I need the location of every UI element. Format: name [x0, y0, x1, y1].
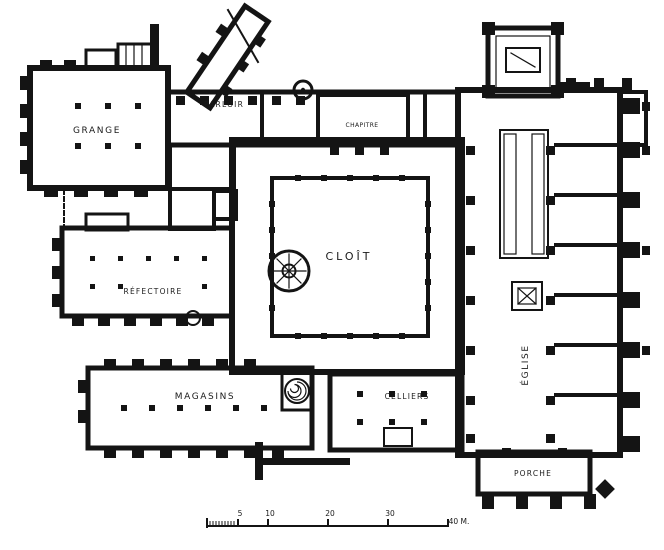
altar [512, 282, 542, 310]
wall-spur [150, 24, 159, 68]
engraving-page: GRANGE PARLOIR CHAPITRE CLOÎT RÉFECTOIRE… [0, 0, 664, 550]
gallery-side-wall [228, 10, 258, 62]
church-building [458, 78, 650, 455]
room-label-celliers: CELLIERS [385, 392, 430, 401]
grange-annex [86, 24, 159, 68]
scale-label-30: 30 [385, 509, 395, 518]
room-label-magasins: MAGASINS [175, 392, 236, 402]
cellar-entry-step [384, 428, 412, 446]
storehouse-piers [121, 405, 267, 411]
scale-label-20: 20 [325, 509, 335, 518]
room-label-refectoire: RÉFECTOIRE [124, 287, 183, 296]
grange-building [20, 24, 168, 197]
room-label-chapitre: CHAPITRE [345, 122, 378, 129]
side-chapels [556, 145, 620, 395]
room-label-cloitre: CLOÎT [325, 250, 372, 263]
room-label-porche: PORCHE [514, 469, 552, 478]
lavabo-fountain-icon [269, 251, 309, 291]
scale-bar: 5 10 20 30 40 M. [207, 509, 469, 528]
scale-label-40m: 40 M. [449, 517, 470, 526]
refectory-piers [90, 256, 207, 289]
room-label-eglise: ÉGLISE [519, 344, 531, 385]
choir-stalls [500, 130, 548, 258]
scale-label-10: 10 [265, 509, 275, 518]
room-label-parloir: PARLOIR [204, 100, 244, 109]
room-label-grange: GRANGE [73, 126, 121, 136]
abbey-floor-plan: GRANGE PARLOIR CHAPITRE CLOÎT RÉFECTOIRE… [0, 0, 664, 550]
chapter-room-pier-stubs [330, 145, 389, 155]
south-enclosure-wall [258, 458, 350, 465]
scale-label-5: 5 [238, 509, 243, 518]
